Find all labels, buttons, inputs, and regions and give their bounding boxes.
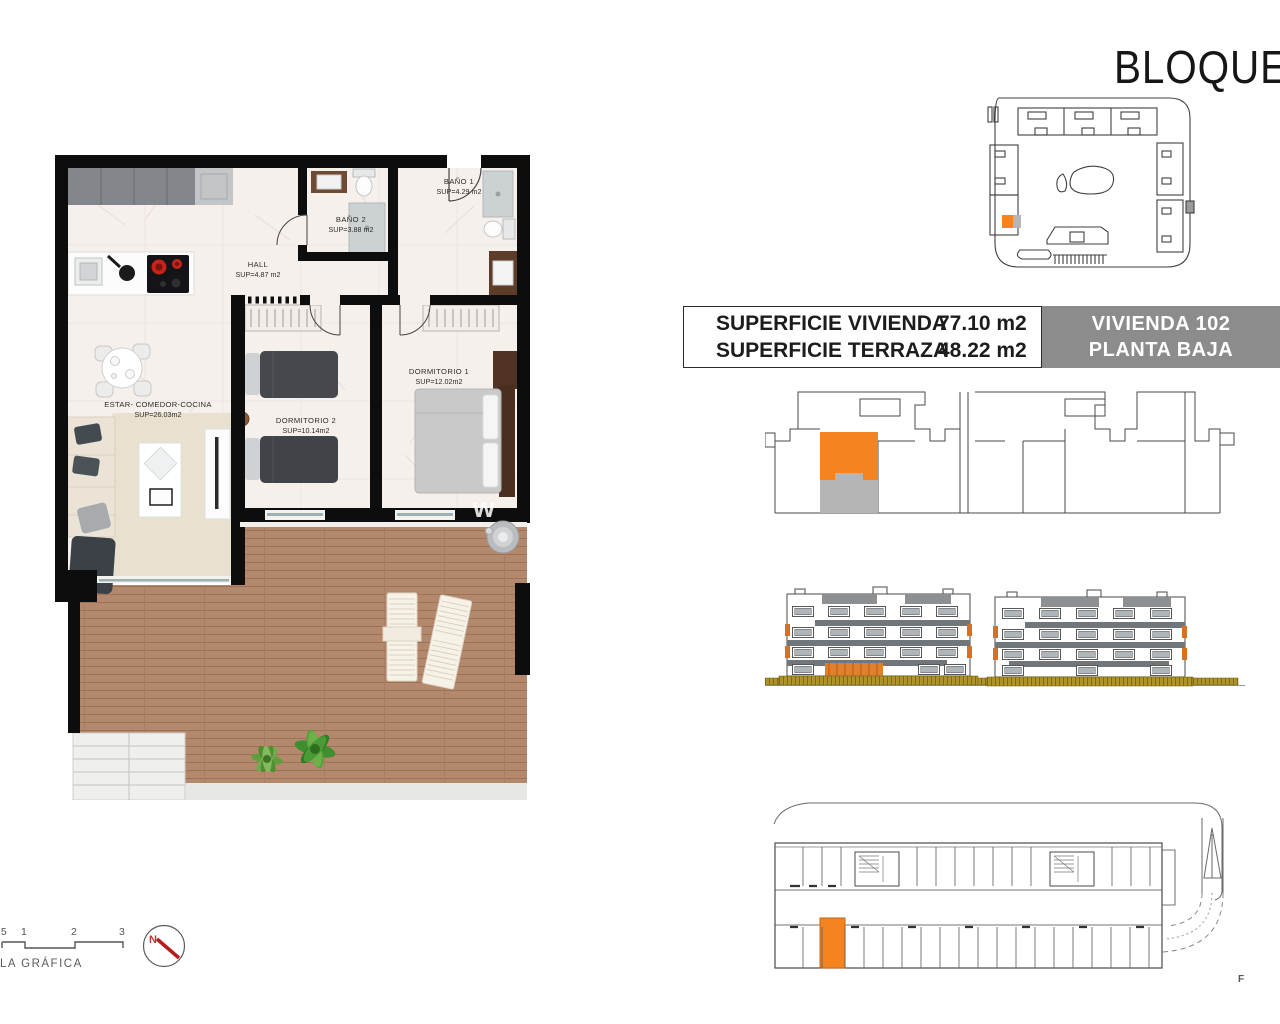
room-area-hall: SUP=4.87 m2 <box>236 270 281 279</box>
site-unit-marker <box>1002 215 1013 228</box>
compass: N <box>138 920 190 972</box>
tv-bench <box>205 429 230 519</box>
plan-sheet: BLOQUE <box>0 0 1280 1024</box>
unit-highlight <box>820 432 878 480</box>
orange-accent <box>785 646 790 658</box>
sun-lounger-1 <box>383 593 421 681</box>
room-area-dorm1: SUP=12.02m2 <box>416 377 463 386</box>
scale-tick: 3 <box>119 926 125 938</box>
room-label-hall: HALL <box>248 260 269 269</box>
cooktop <box>147 255 189 293</box>
site-boundary <box>995 98 1190 267</box>
kitchen-counter <box>68 168 233 205</box>
room-label-estar: ESTAR- COMEDOR-COCINA <box>104 400 212 409</box>
site-pool <box>1070 166 1114 194</box>
orange-accent <box>1182 648 1187 660</box>
dining-table <box>102 348 142 388</box>
room-area-bano1: SUP=4.29 m2 <box>437 187 482 196</box>
balcony-band <box>1025 622 1185 628</box>
orange-accent <box>967 624 972 636</box>
scale-bar-label: LA GRÁFICA <box>0 957 83 970</box>
site-amenity <box>1047 227 1108 244</box>
room-label-dorm1: DORMITORIO 1 <box>409 367 469 376</box>
orange-accent <box>993 648 998 660</box>
scale-bar: ,5 1 2 3 LA GRÁFICA <box>0 922 140 977</box>
pillow <box>72 455 100 476</box>
terrace-walkway <box>185 783 527 800</box>
surface-value: 48.22 m2 <box>938 339 1027 363</box>
surface-label: SUPERFICIE VIVIENDA <box>684 312 938 336</box>
watermark: w <box>472 492 495 523</box>
room-area-bano2: SUP=3.88 m2 <box>329 225 374 234</box>
apartment-floor-plan: w HALL SUP=4.87 m2 BAÑO 2 SUP=3.88 m2 BA… <box>55 155 530 800</box>
tray <box>150 489 172 505</box>
surface-table: SUPERFICIE VIVIENDA 77.10 m2 SUPERFICIE … <box>683 306 1042 368</box>
terrace-stairs <box>73 733 185 800</box>
surface-value: 77.10 m2 <box>938 312 1027 336</box>
balcony-band <box>995 642 1185 648</box>
entry-opening <box>447 155 481 168</box>
site-plan-map <box>965 88 1205 278</box>
scale-tick: 2 <box>71 926 77 938</box>
surface-label: SUPERFICIE TERRAZA <box>684 339 938 363</box>
north-label: N <box>149 934 157 946</box>
room-area-estar: SUP=26.03m2 <box>135 410 182 419</box>
wardrobe-brown <box>493 351 517 389</box>
washbasin <box>493 261 513 285</box>
tv <box>215 437 219 509</box>
corner-mark: F <box>1238 974 1244 985</box>
page-title: BLOQUE <box>1114 40 1280 94</box>
site-building-west-1 <box>990 145 1018 195</box>
unit-floor: PLANTA BAJA <box>1089 337 1233 363</box>
balcony-band <box>787 640 970 646</box>
stair-core <box>855 852 899 886</box>
facade-elevations <box>765 580 1245 700</box>
kitchen-island <box>68 252 194 295</box>
bed-dorm2-2 <box>245 436 338 483</box>
bed-dorm2-1 <box>245 351 338 398</box>
wardrobe-dorm2 <box>245 305 321 331</box>
room-area-dorm2: SUP=10.14m2 <box>283 426 330 435</box>
facade-building-left <box>779 587 978 685</box>
balcony-band <box>815 620 970 626</box>
pan <box>119 265 135 281</box>
scale-tick: 1 <box>21 926 27 938</box>
sofa <box>68 417 116 594</box>
washbasin <box>317 175 341 189</box>
stair-core <box>1050 852 1094 886</box>
room-label-bano1: BAÑO 1 <box>444 177 474 186</box>
coffee-table <box>139 443 181 517</box>
orange-accent <box>785 624 790 636</box>
facade-building-right <box>987 590 1193 686</box>
pillow <box>483 443 498 487</box>
fence <box>987 677 1193 686</box>
room-label-bano2: BAÑO 2 <box>336 215 366 224</box>
highlighted-parking-space <box>820 918 845 968</box>
table-row: SUPERFICIE TERRAZA 48.22 m2 <box>684 337 1041 364</box>
unit-location-diagram <box>765 385 1245 525</box>
orange-accent <box>967 646 972 658</box>
table-row: SUPERFICIE VIVIENDA 77.10 m2 <box>684 310 1041 337</box>
unit-number: VIVIENDA 102 <box>1092 311 1231 337</box>
scale-bar-line <box>2 942 123 948</box>
ramp-arrow <box>1204 828 1221 878</box>
pillow <box>483 395 498 439</box>
toilet <box>484 221 502 237</box>
wardrobe-dorm1 <box>423 305 499 331</box>
compass-needle <box>157 939 179 958</box>
scale-tick: ,5 <box>0 926 7 938</box>
room-label-dorm2: DORMITORIO 2 <box>276 416 336 425</box>
unit-badge: VIVIENDA 102 PLANTA BAJA <box>1042 306 1280 368</box>
orange-accent <box>1182 626 1187 638</box>
fence <box>779 676 978 685</box>
orange-accent <box>993 626 998 638</box>
garage-plan <box>760 790 1250 1010</box>
toilet <box>356 176 372 196</box>
site-terrace-marker <box>1013 215 1021 228</box>
highlighted-ground-unit <box>825 663 883 676</box>
